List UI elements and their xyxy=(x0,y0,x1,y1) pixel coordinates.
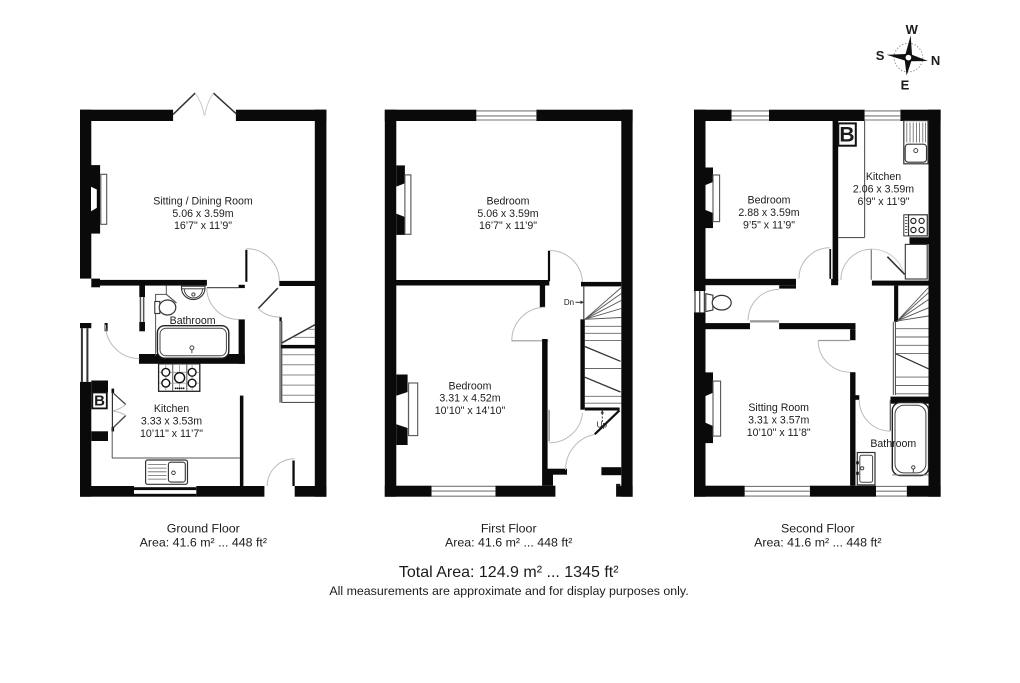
svg-text:Bathroom: Bathroom xyxy=(170,315,216,327)
svg-text:All measurements are approxima: All measurements are approximate and for… xyxy=(329,584,688,598)
svg-text:5.06 x 3.59m: 5.06 x 3.59m xyxy=(172,208,233,220)
svg-text:9’5" x 11’9": 9’5" x 11’9" xyxy=(743,219,795,231)
svg-text:3.33 x 3.53m: 3.33 x 3.53m xyxy=(141,416,202,428)
svg-text:Bedroom: Bedroom xyxy=(748,195,791,207)
svg-text:E: E xyxy=(901,78,910,93)
svg-text:10’10" x 11’8": 10’10" x 11’8" xyxy=(747,427,811,439)
svg-text:6’9" x 11’9": 6’9" x 11’9" xyxy=(857,196,909,208)
svg-text:Ground Floor: Ground Floor xyxy=(167,522,240,536)
svg-text:Total Area: 124.9 m² ... 1345: Total Area: 124.9 m² ... 1345 ft² xyxy=(399,564,619,581)
svg-text:3.31 x 3.57m: 3.31 x 3.57m xyxy=(748,414,809,426)
svg-text:10’10" x 14’10": 10’10" x 14’10" xyxy=(435,405,506,417)
svg-text:Area: 41.6 m² ... 448 ft²: Area: 41.6 m² ... 448 ft² xyxy=(140,535,267,549)
svg-text:Dn: Dn xyxy=(564,298,574,307)
svg-text:3.31 x 4.52m: 3.31 x 4.52m xyxy=(439,393,500,405)
svg-text:10’11" x 11’7": 10’11" x 11’7" xyxy=(140,428,203,440)
svg-text:Sitting / Dining Room: Sitting / Dining Room xyxy=(153,196,253,208)
svg-text:S: S xyxy=(876,48,885,63)
svg-text:Kitchen: Kitchen xyxy=(866,171,901,183)
svg-text:Kitchen: Kitchen xyxy=(154,403,189,415)
svg-text:2.06 x 3.59m: 2.06 x 3.59m xyxy=(853,183,914,195)
svg-text:Area: 41.6 m² ... 448 ft²: Area: 41.6 m² ... 448 ft² xyxy=(754,535,881,549)
svg-text:5.06 x 3.59m: 5.06 x 3.59m xyxy=(477,208,538,220)
svg-text:Sitting Room: Sitting Room xyxy=(748,402,809,414)
svg-text:N: N xyxy=(931,53,940,68)
svg-text:W: W xyxy=(906,22,919,37)
svg-text:2.88 x 3.59m: 2.88 x 3.59m xyxy=(738,207,799,219)
svg-text:Bedroom: Bedroom xyxy=(487,196,530,208)
svg-text:16’7" x 11’9": 16’7" x 11’9" xyxy=(174,220,232,232)
svg-text:Second Floor: Second Floor xyxy=(781,522,855,536)
svg-text:First Floor: First Floor xyxy=(481,522,537,536)
svg-text:Bedroom: Bedroom xyxy=(449,380,492,392)
svg-text:B: B xyxy=(94,393,105,410)
svg-text:16’7" x 11’9": 16’7" x 11’9" xyxy=(479,220,537,232)
svg-text:B: B xyxy=(839,124,854,147)
svg-text:Bathroom: Bathroom xyxy=(870,438,916,450)
svg-text:Area: 41.6 m² ... 448 ft²: Area: 41.6 m² ... 448 ft² xyxy=(445,535,572,549)
